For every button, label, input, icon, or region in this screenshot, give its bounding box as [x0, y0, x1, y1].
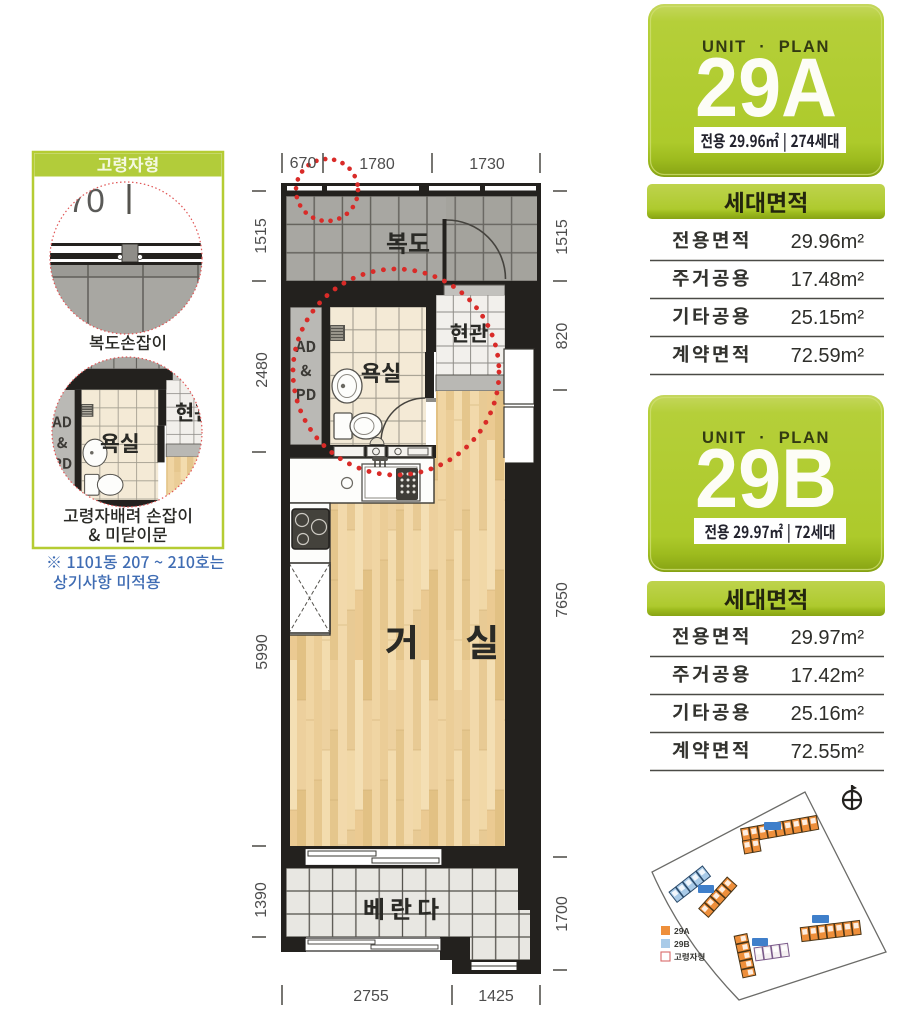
svg-text:17.48m²: 17.48m²	[791, 269, 865, 291]
svg-text:670: 670	[290, 155, 317, 172]
svg-text:7650: 7650	[554, 582, 571, 618]
svg-text:820: 820	[554, 323, 571, 350]
svg-text:1730: 1730	[469, 156, 505, 173]
svg-text:1425: 1425	[478, 988, 514, 1005]
svg-text:2755: 2755	[353, 988, 389, 1005]
svg-text:1700: 1700	[554, 896, 571, 932]
svg-text:2480: 2480	[254, 352, 271, 388]
svg-text:25.15m²: 25.15m²	[791, 307, 865, 329]
svg-text:1390: 1390	[253, 882, 270, 918]
svg-text:72.59m²: 72.59m²	[791, 345, 865, 367]
svg-text:29.96m²: 29.96m²	[791, 231, 865, 253]
svg-text:29B: 29B	[674, 939, 690, 949]
svg-text:1515: 1515	[253, 218, 270, 254]
svg-text:72.55m²: 72.55m²	[791, 741, 865, 763]
svg-text:5990: 5990	[254, 634, 271, 670]
svg-text:1780: 1780	[359, 156, 395, 173]
svg-text:1515: 1515	[554, 219, 571, 255]
svg-text:29B: 29B	[695, 432, 837, 526]
svg-text:25.16m²: 25.16m²	[791, 703, 865, 725]
svg-text:29A: 29A	[695, 41, 837, 135]
svg-text:17.42m²: 17.42m²	[791, 665, 865, 687]
svg-text:29.97m²: 29.97m²	[791, 627, 865, 649]
svg-text:29A: 29A	[674, 926, 690, 936]
